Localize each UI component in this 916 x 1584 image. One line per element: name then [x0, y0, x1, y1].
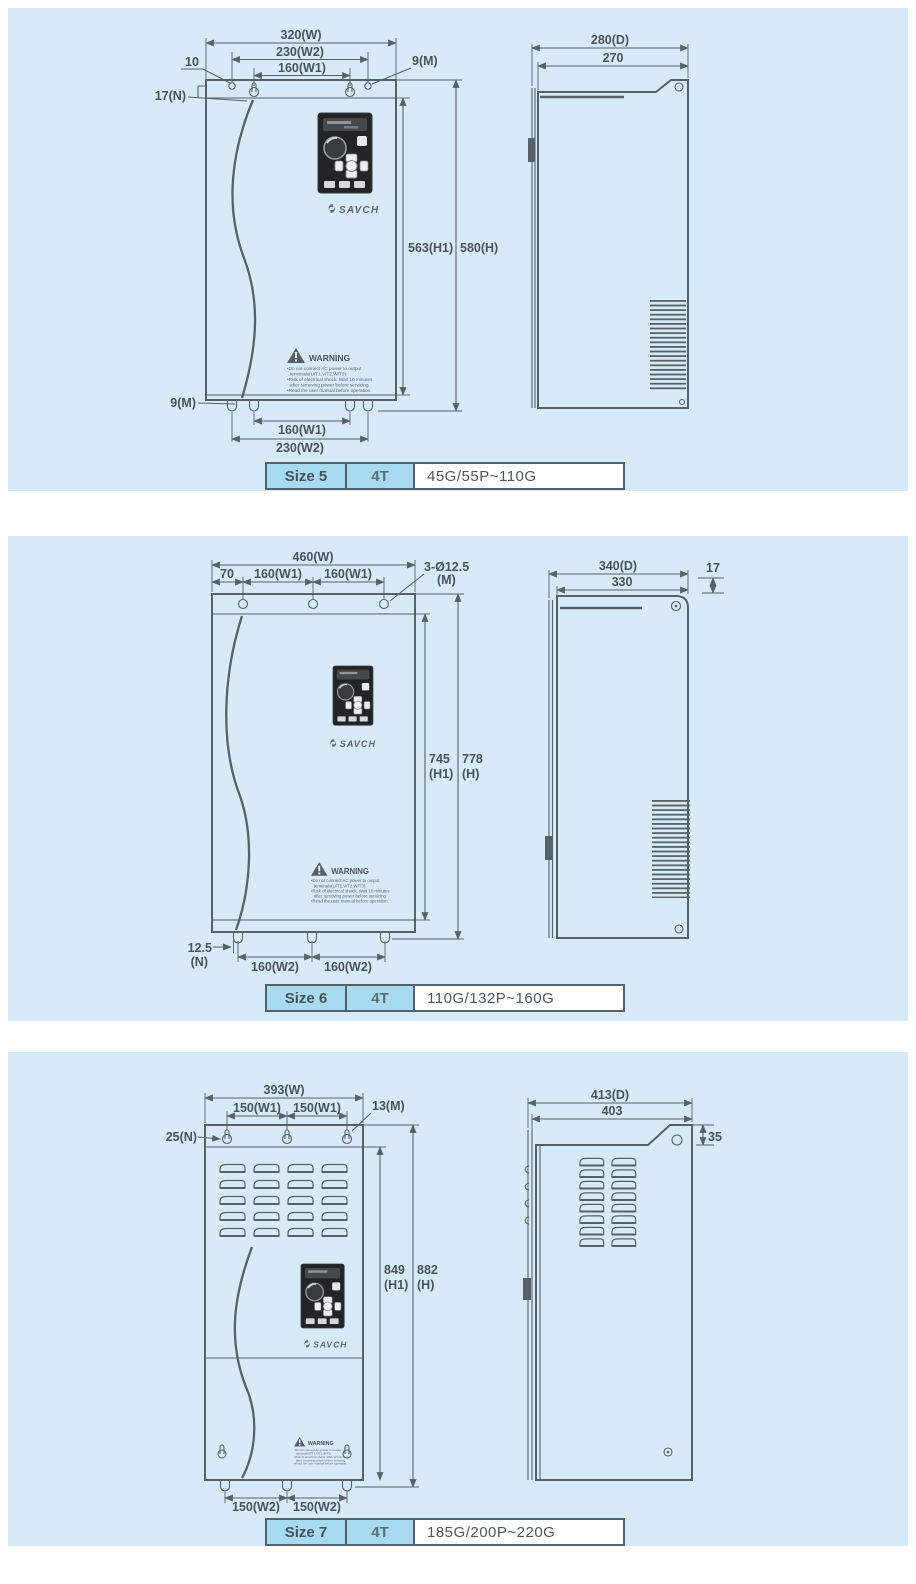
savch-icon	[304, 1340, 309, 1348]
mounting-slots-bottom	[234, 932, 390, 943]
size-label: Size 5	[267, 464, 347, 488]
mounting-keyholes-top	[223, 1130, 352, 1144]
dim-w1-bottom: 160(W1)	[278, 423, 326, 437]
cable-curve	[232, 100, 255, 398]
dim-hole-top: 9(M)	[412, 54, 438, 68]
size6-side-view	[545, 596, 690, 938]
dim-w1-b: 160(W1)	[324, 567, 372, 581]
svg-text:SAVCH: SAVCH	[340, 739, 376, 749]
size6-front-view: SAVCH WARNING •Do not connect AC power t…	[212, 594, 415, 943]
dim-w2-a: 160(W2)	[251, 960, 299, 974]
mounting-holes-top	[239, 600, 389, 609]
side-latch-tab	[545, 836, 553, 860]
dim-n-suffix: (N)	[191, 955, 208, 969]
voltage-label: 4T	[347, 1520, 415, 1544]
dim-offset-17: 17	[706, 561, 720, 575]
warning-block: WARNING •Do not connect AC power to outp…	[287, 348, 373, 393]
dim-holes-line1: 3-Ø12.5	[424, 560, 469, 574]
cable-curve	[235, 1247, 254, 1478]
dim-h1-value: 849	[384, 1263, 405, 1277]
warning-block: WARNING •Do not connect AC power to outp…	[294, 1437, 348, 1466]
svg-text:•Read the user manual before o: •Read the user manual before operation.	[294, 1462, 347, 1466]
dim-slot-left: 17(N)	[155, 89, 186, 103]
size5-label-bar: Size 5 4T 45G/55P~110G	[265, 462, 625, 490]
dim-h-value: 882	[417, 1263, 438, 1277]
dim-w2-bottom: 230(W2)	[276, 441, 324, 455]
size5-side-dimensions: 280(D) 270	[532, 33, 688, 90]
model-range-label: 110G/132P~160G	[415, 986, 623, 1010]
dim-h1-suffix: (H1)	[429, 767, 453, 781]
size5-panel: SAVCH WARNING •Do not connect AC power t…	[8, 8, 908, 491]
side-vent-louvers	[580, 1158, 636, 1246]
size6-drawing: SAVCH WARNING •Do not connect AC power t…	[8, 536, 908, 1021]
dim-width: 460(W)	[293, 550, 334, 564]
warning-block: WARNING •Do not connect AC power to outp…	[311, 862, 390, 903]
savch-logo: SAVCH	[304, 1340, 347, 1350]
dim-depth: 280(D)	[591, 33, 629, 47]
dim-w2-b: 150(W2)	[293, 1500, 341, 1514]
warning-title: WARNING	[309, 353, 350, 363]
dim-width: 393(W)	[264, 1083, 305, 1097]
svg-text:•Do not connect AC power to ou: •Do not connect AC power to output	[287, 366, 362, 371]
size7-panel: SAVCH WARNING •Do not connect AC power t…	[8, 1052, 908, 1546]
manual-page: SAVCH WARNING •Do not connect AC power t…	[0, 0, 916, 1584]
keypad-dial	[324, 137, 346, 159]
dim-hole-top: 13(M)	[372, 1099, 405, 1113]
dim-w2-b: 160(W2)	[324, 960, 372, 974]
dim-width: 320(W)	[281, 28, 322, 42]
svg-text:SAVCH: SAVCH	[313, 1340, 347, 1350]
svg-text:after removing power before se: after removing power before servicing.	[290, 383, 370, 388]
size-label: Size 7	[267, 1520, 347, 1544]
size7-side-view	[523, 1125, 692, 1480]
keypad	[333, 666, 373, 725]
dim-n-value: 12.5	[188, 941, 212, 955]
dim-w1-a: 150(W1)	[233, 1101, 281, 1115]
side-vent-grille	[650, 300, 686, 392]
size6-label-bar: Size 6 4T 110G/132P~160G	[265, 984, 625, 1012]
dim-w2-top: 230(W2)	[276, 45, 324, 59]
mounting-slots-bottom	[221, 1480, 352, 1491]
svg-text:WARNING: WARNING	[308, 1441, 334, 1447]
svg-text:•Risk of electrical shock. Wai: •Risk of electrical shock. Wait 10 minut…	[287, 377, 373, 382]
dim-depth: 340(D)	[599, 559, 637, 573]
size7-front-view: SAVCH WARNING •Do not connect AC power t…	[205, 1125, 363, 1491]
dim-depth: 413(D)	[591, 1088, 629, 1102]
size-label: Size 6	[267, 986, 347, 1010]
svg-text:•Read the user manual before o: •Read the user manual before operation.	[287, 388, 372, 393]
size6-side-dimensions: 340(D) 330 17	[549, 559, 724, 600]
dim-slot-left: 25(N)	[166, 1130, 197, 1144]
dim-w1-b: 150(W1)	[293, 1101, 341, 1115]
model-range-label: 185G/200P~220G	[415, 1520, 623, 1544]
voltage-label: 4T	[347, 986, 415, 1010]
side-latch-tab	[523, 1278, 531, 1300]
savch-icon	[330, 739, 336, 747]
size7-drawing: SAVCH WARNING •Do not connect AC power t…	[8, 1052, 908, 1546]
dim-w1-a: 160(W1)	[254, 567, 302, 581]
svg-text:terminals(U/T1,V/T2,W/T3).: terminals(U/T1,V/T2,W/T3).	[290, 372, 347, 377]
brand-text: SAVCH	[339, 205, 379, 216]
dim-h-value: 778	[462, 752, 483, 766]
side-latch-tab	[528, 138, 535, 162]
dim-offset-35: 35	[708, 1130, 722, 1144]
size5-side-view	[528, 80, 688, 408]
dim-depth-inner: 330	[612, 575, 633, 589]
keypad	[318, 113, 372, 193]
dim-holes-line2: (M)	[437, 573, 456, 587]
dim-offset-10: 10	[185, 55, 199, 69]
dim-h1: 563(H1)	[408, 241, 453, 255]
model-range-label: 45G/55P~110G	[415, 464, 623, 488]
size5-front-view: SAVCH WARNING •Do not connect AC power t…	[198, 80, 396, 411]
size6-panel: SAVCH WARNING •Do not connect AC power t…	[8, 536, 908, 1021]
side-vent-grille	[652, 800, 690, 898]
savch-icon	[329, 204, 335, 213]
mounting-slots-bottom	[228, 400, 373, 411]
svg-text:•Read the user manual before o: •Read the user manual before operation.	[311, 898, 389, 903]
cable-curve	[226, 616, 249, 930]
dim-h1-value: 745	[429, 752, 450, 766]
dim-h-suffix: (H)	[462, 767, 479, 781]
dim-depth-inner: 270	[603, 51, 624, 65]
dim-depth-inner: 403	[602, 1104, 623, 1118]
keypad-display	[323, 118, 367, 131]
savch-logo: SAVCH	[330, 739, 376, 749]
dim-offset-70: 70	[220, 567, 234, 581]
dim-h-suffix: (H)	[417, 1278, 434, 1292]
size7-label-bar: Size 7 4T 185G/200P~220G	[265, 1518, 625, 1546]
dim-w1-top: 160(W1)	[278, 61, 326, 75]
dim-h1-suffix: (H1)	[384, 1278, 408, 1292]
dim-w2-a: 150(W2)	[232, 1500, 280, 1514]
dim-hole-bottom: 9(M)	[170, 396, 196, 410]
svg-text:WARNING: WARNING	[331, 867, 369, 876]
dim-h: 580(H)	[460, 241, 498, 255]
keypad	[301, 1264, 344, 1328]
savch-logo: SAVCH	[329, 204, 380, 216]
voltage-label: 4T	[347, 464, 415, 488]
front-vent-louvers	[220, 1165, 347, 1237]
size5-drawing: SAVCH WARNING •Do not connect AC power t…	[8, 8, 908, 491]
